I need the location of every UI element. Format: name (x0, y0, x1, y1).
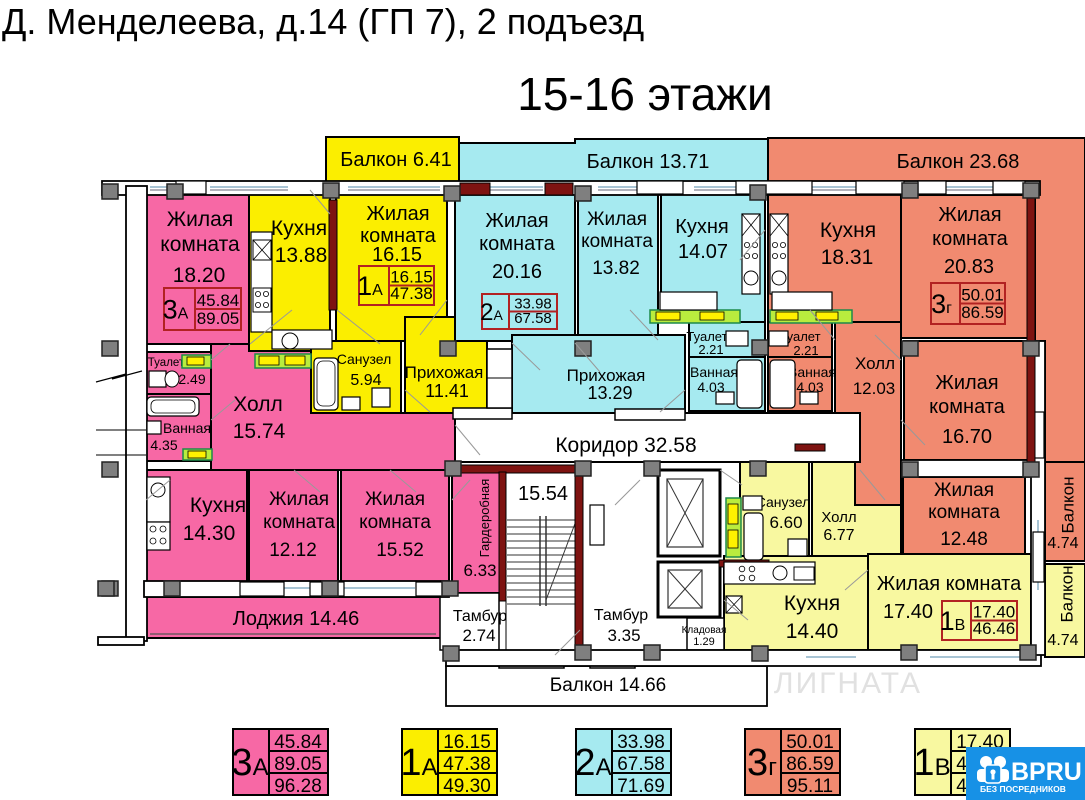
svg-text:Санузел: Санузел (756, 494, 811, 510)
svg-text:Лоджия 14.46: Лоджия 14.46 (233, 608, 359, 630)
svg-text:Кухня: Кухня (820, 219, 876, 242)
svg-text:12.48: 12.48 (940, 529, 988, 550)
svg-text:BPRU: BPRU (1011, 758, 1082, 786)
svg-text:89.05: 89.05 (274, 754, 322, 775)
svg-text:14.40: 14.40 (786, 620, 839, 643)
svg-text:86.59: 86.59 (961, 303, 1004, 322)
svg-text:1.29: 1.29 (693, 636, 714, 648)
svg-text:13.82: 13.82 (592, 258, 640, 279)
svg-text:13.29: 13.29 (587, 383, 632, 403)
svg-text:Туалет: Туалет (148, 357, 185, 369)
svg-text:47.38: 47.38 (443, 754, 491, 775)
svg-text:16.15: 16.15 (443, 732, 491, 753)
svg-text:45.84: 45.84 (197, 291, 240, 310)
svg-text:Балкон: Балкон (1057, 565, 1076, 622)
svg-text:20.83: 20.83 (944, 256, 994, 278)
svg-text:комната: комната (581, 231, 653, 252)
svg-text:Жилая: Жилая (587, 209, 647, 230)
svg-text:2.74: 2.74 (462, 626, 495, 645)
svg-text:Жилая: Жилая (366, 203, 429, 225)
svg-text:Жилая: Жилая (934, 480, 994, 501)
svg-text:47.38: 47.38 (390, 284, 433, 303)
svg-text:49.30: 49.30 (443, 776, 491, 797)
svg-text:Гардеробная: Гардеробная (477, 479, 492, 558)
svg-text:комната: комната (928, 502, 1000, 523)
svg-text:67.58: 67.58 (617, 754, 665, 775)
svg-text:33.98: 33.98 (617, 732, 665, 753)
svg-text:3.35: 3.35 (607, 626, 640, 645)
svg-text:Жилая: Жилая (485, 210, 548, 232)
svg-text:Балкон 6.41: Балкон 6.41 (340, 149, 452, 171)
svg-text:Тамбур: Тамбур (594, 607, 648, 624)
svg-text:Жилая: Жилая (365, 489, 425, 510)
svg-text:Жилая комната: Жилая комната (877, 573, 1022, 595)
svg-text:БЕЗ ПОСРЕДНИКОВ: БЕЗ ПОСРЕДНИКОВ (980, 784, 1066, 794)
svg-text:45.84: 45.84 (274, 732, 322, 753)
svg-text:20.16: 20.16 (492, 261, 542, 283)
svg-text:50.01: 50.01 (786, 732, 834, 753)
svg-text:Тамбур: Тамбур (453, 608, 507, 625)
svg-text:6.33: 6.33 (463, 561, 496, 580)
svg-text:Д. Менделеева, д.14 (ГП 7), 2: Д. Менделеева, д.14 (ГП 7), 2 подъезд (2, 1, 644, 42)
svg-text:95.11: 95.11 (787, 776, 833, 797)
svg-text:18.20: 18.20 (173, 264, 226, 287)
svg-text:Жилая: Жилая (938, 204, 1001, 226)
svg-text:12.03: 12.03 (853, 379, 896, 398)
svg-text:комната: комната (932, 228, 1009, 250)
svg-text:Кухня: Кухня (784, 592, 840, 615)
svg-text:6.60: 6.60 (769, 513, 802, 532)
svg-text:комната: комната (160, 233, 240, 256)
svg-text:Холл: Холл (855, 354, 895, 373)
svg-text:16.70: 16.70 (942, 426, 992, 448)
svg-text:Жилая: Жилая (167, 208, 233, 231)
svg-text:67.58: 67.58 (514, 310, 552, 327)
svg-text:15.74: 15.74 (233, 420, 286, 443)
svg-text:Кухня: Кухня (271, 217, 327, 240)
svg-text:Ванная: Ванная (163, 420, 211, 436)
svg-text:Балкон: Балкон (1058, 476, 1077, 533)
svg-text:4.35: 4.35 (150, 437, 177, 453)
svg-text:Кладовая: Кладовая (682, 625, 727, 636)
svg-text:13.88: 13.88 (275, 244, 328, 267)
svg-text:Кухня: Кухня (675, 216, 729, 238)
svg-text:11.41: 11.41 (425, 381, 469, 401)
svg-text:89.05: 89.05 (197, 309, 240, 328)
svg-text:комната: комната (263, 512, 335, 533)
svg-text:86.59: 86.59 (786, 754, 834, 775)
svg-text:Балкон 13.71: Балкон 13.71 (587, 151, 710, 173)
svg-text:комната: комната (359, 512, 431, 533)
svg-text:17.40: 17.40 (883, 601, 933, 623)
svg-text:4.74: 4.74 (1047, 632, 1078, 649)
svg-text:14.07: 14.07 (678, 241, 728, 263)
svg-text:2.49: 2.49 (178, 371, 205, 387)
svg-text:Кухня: Кухня (190, 494, 246, 517)
svg-text:16.15: 16.15 (372, 244, 422, 266)
svg-text:46.46: 46.46 (973, 619, 1016, 638)
svg-text:15-16 этажи: 15-16 этажи (517, 68, 773, 120)
svg-text:комната: комната (929, 396, 1006, 418)
svg-text:12.12: 12.12 (269, 540, 317, 561)
svg-text:Жилая: Жилая (269, 489, 329, 510)
svg-text:Холл: Холл (821, 509, 856, 526)
svg-text:Балкон 14.66: Балкон 14.66 (550, 675, 667, 696)
svg-text:14.30: 14.30 (183, 522, 236, 545)
svg-text:50.01: 50.01 (961, 286, 1004, 305)
svg-text:Санузел: Санузел (337, 351, 392, 367)
svg-text:Жилая: Жилая (935, 372, 998, 394)
svg-text:71.69: 71.69 (617, 776, 665, 797)
svg-text:Холл: Холл (233, 393, 283, 416)
svg-text:Балкон 23.68: Балкон 23.68 (897, 151, 1020, 173)
svg-text:15.52: 15.52 (376, 540, 424, 561)
svg-text:2.21: 2.21 (793, 343, 818, 358)
svg-text:комната: комната (479, 233, 556, 255)
svg-text:5.94: 5.94 (350, 372, 381, 389)
svg-text:Коридор 32.58: Коридор 32.58 (555, 434, 696, 457)
svg-text:Прихожая: Прихожая (405, 363, 484, 382)
svg-text:ЛИГНАТА: ЛИГНАТА (774, 667, 922, 700)
svg-text:2.21: 2.21 (698, 342, 723, 357)
svg-text:18.31: 18.31 (821, 246, 874, 269)
svg-text:4.74: 4.74 (1047, 535, 1078, 552)
svg-text:Ванная: Ванная (690, 364, 738, 380)
svg-text:96.28: 96.28 (274, 776, 322, 797)
svg-text:6.77: 6.77 (823, 527, 854, 544)
svg-text:15.54: 15.54 (518, 483, 568, 505)
